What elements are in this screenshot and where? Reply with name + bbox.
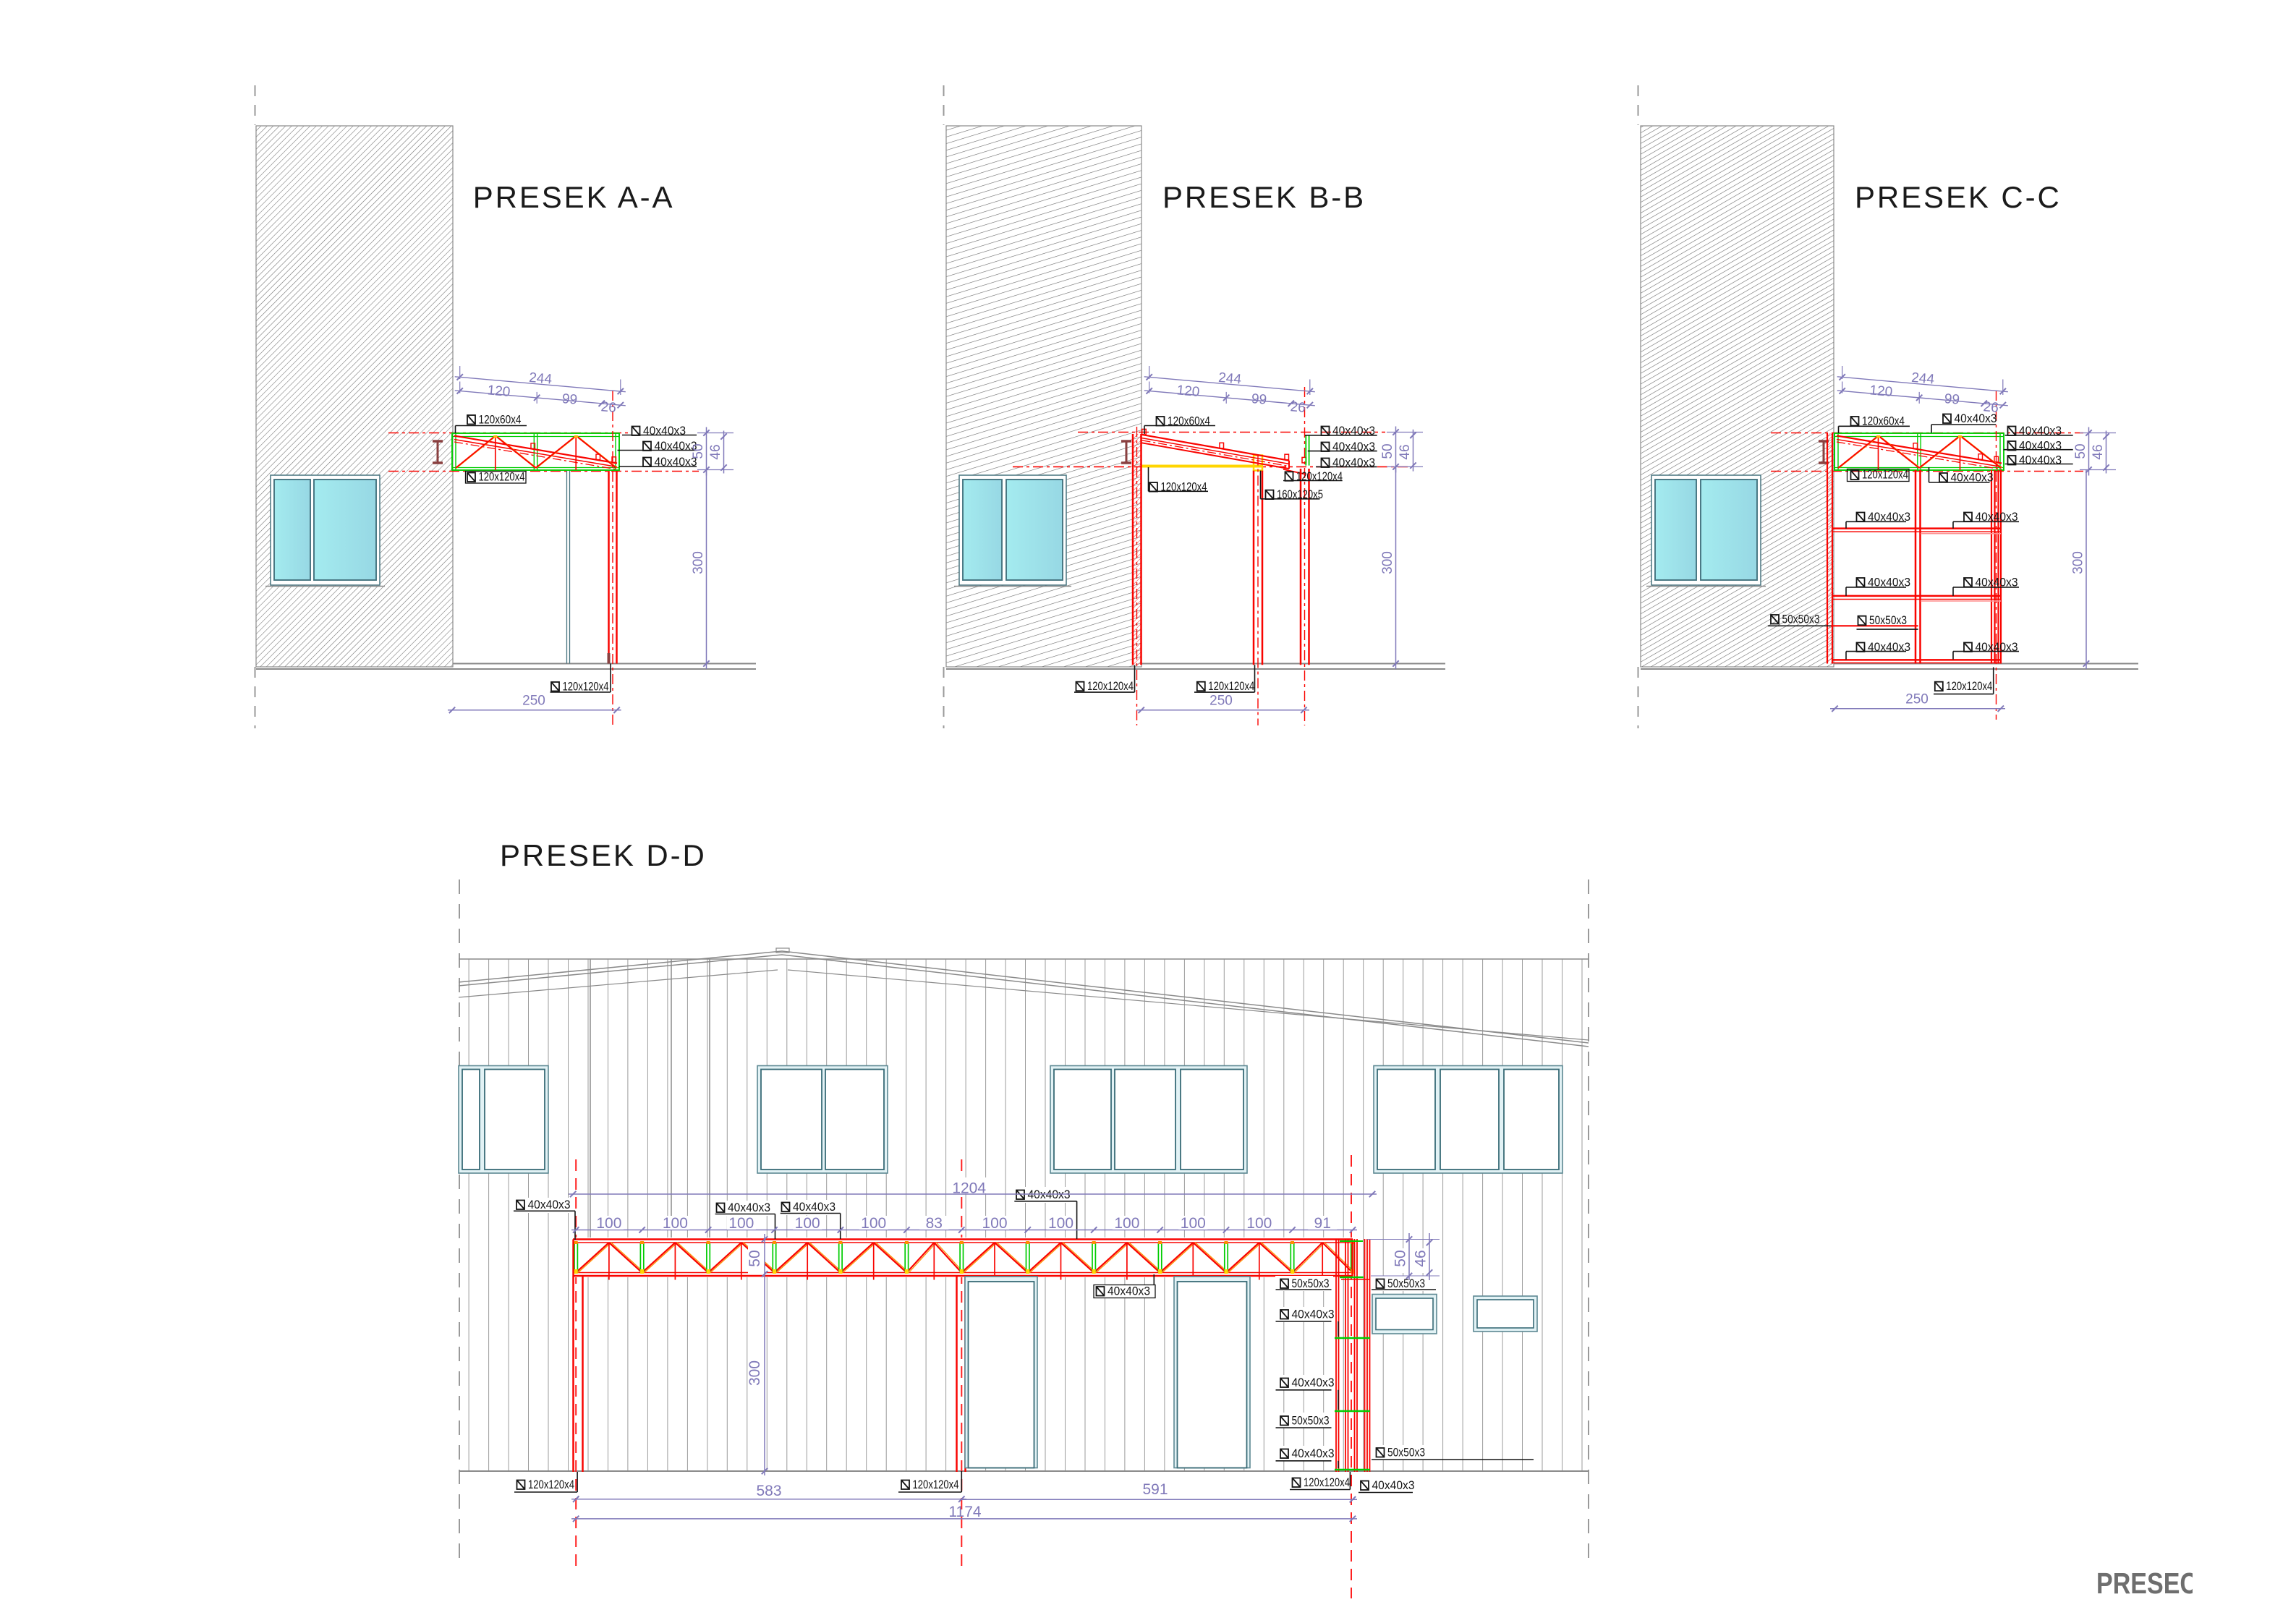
svg-text:100: 100 (795, 1215, 820, 1232)
svg-text:100: 100 (1181, 1215, 1206, 1232)
svg-text:50: 50 (1393, 1250, 1409, 1266)
svg-text:40x40x3: 40x40x3 (1292, 1308, 1335, 1321)
svg-text:120x120x4: 120x120x4 (1862, 468, 1908, 482)
svg-text:120x120x4: 120x120x4 (1208, 679, 1254, 693)
svg-text:50x50x3: 50x50x3 (1292, 1277, 1330, 1290)
svg-text:120: 120 (1176, 383, 1200, 400)
svg-text:1174: 1174 (948, 1504, 981, 1520)
svg-text:40x40x3: 40x40x3 (1292, 1447, 1335, 1460)
svg-text:40x40x3: 40x40x3 (1372, 1478, 1415, 1492)
svg-text:26: 26 (600, 399, 617, 416)
svg-text:40x40x3: 40x40x3 (728, 1201, 770, 1214)
svg-text:120x120x4: 120x120x4 (479, 470, 525, 484)
svg-text:50: 50 (747, 1250, 763, 1266)
svg-text:40x40x3: 40x40x3 (1107, 1285, 1150, 1298)
svg-text:120x60x4: 120x60x4 (479, 413, 522, 427)
svg-text:120x120x4: 120x120x4 (1087, 679, 1134, 693)
svg-text:120x120x4: 120x120x4 (1946, 679, 1992, 693)
svg-text:100: 100 (1114, 1215, 1139, 1232)
svg-text:50x50x3: 50x50x3 (1782, 613, 1820, 626)
svg-text:46: 46 (1398, 444, 1413, 459)
svg-text:583: 583 (756, 1483, 781, 1499)
svg-text:50: 50 (1380, 443, 1395, 459)
svg-text:100: 100 (728, 1215, 754, 1232)
svg-text:83: 83 (926, 1215, 943, 1232)
svg-text:PRESEC: PRESEC (2096, 1567, 2198, 1600)
svg-text:100: 100 (596, 1215, 621, 1232)
svg-text:50x50x3: 50x50x3 (1387, 1446, 1425, 1460)
svg-text:46: 46 (708, 444, 723, 459)
svg-text:244: 244 (1910, 370, 1935, 388)
svg-text:250: 250 (522, 694, 545, 709)
svg-text:120x120x4: 120x120x4 (563, 680, 609, 694)
svg-text:PRESEK C-C: PRESEK C-C (1855, 180, 2062, 214)
svg-text:99: 99 (561, 391, 578, 408)
svg-text:26: 26 (1983, 399, 1999, 416)
svg-text:91: 91 (1314, 1215, 1331, 1232)
svg-text:300: 300 (691, 551, 706, 574)
svg-text:50x50x3: 50x50x3 (1869, 613, 1907, 627)
svg-text:120x120x4: 120x120x4 (1304, 1475, 1350, 1489)
svg-text:99: 99 (1944, 391, 1960, 408)
svg-text:244: 244 (1217, 370, 1242, 388)
svg-text:100: 100 (861, 1215, 886, 1232)
svg-text:50x50x3: 50x50x3 (1292, 1414, 1330, 1428)
svg-text:300: 300 (1380, 551, 1395, 574)
svg-text:PRESEK B-B: PRESEK B-B (1162, 180, 1366, 214)
svg-text:100: 100 (663, 1215, 688, 1232)
svg-text:99: 99 (1251, 391, 1267, 408)
svg-text:100: 100 (1246, 1215, 1272, 1232)
svg-text:46: 46 (2091, 444, 2106, 459)
svg-text:40x40x3: 40x40x3 (1292, 1376, 1335, 1389)
svg-text:PRESEK D-D: PRESEK D-D (500, 838, 707, 872)
svg-text:40x40x3: 40x40x3 (793, 1200, 836, 1214)
svg-text:26: 26 (1290, 399, 1306, 416)
svg-text:120x120x4: 120x120x4 (913, 1478, 959, 1491)
svg-text:1204: 1204 (952, 1180, 986, 1197)
svg-text:300: 300 (747, 1360, 763, 1386)
svg-text:250: 250 (1905, 692, 1929, 707)
svg-text:46: 46 (1413, 1250, 1429, 1266)
svg-text:40x40x3: 40x40x3 (528, 1198, 571, 1211)
svg-text:50: 50 (691, 443, 706, 459)
svg-text:120: 120 (1869, 383, 1893, 400)
svg-text:244: 244 (528, 370, 553, 388)
svg-text:PRESEK A-A: PRESEK A-A (473, 180, 675, 214)
svg-text:40x40x3: 40x40x3 (2019, 453, 2062, 467)
svg-text:100: 100 (982, 1215, 1007, 1232)
svg-text:120: 120 (487, 383, 511, 400)
svg-text:591: 591 (1142, 1481, 1168, 1498)
svg-text:50: 50 (2073, 443, 2088, 459)
svg-text:120x120x4: 120x120x4 (528, 1478, 574, 1491)
svg-text:300: 300 (2071, 551, 2086, 574)
svg-text:250: 250 (1209, 694, 1233, 709)
svg-text:100: 100 (1048, 1215, 1073, 1232)
svg-text:40x40x3: 40x40x3 (2019, 439, 2062, 453)
